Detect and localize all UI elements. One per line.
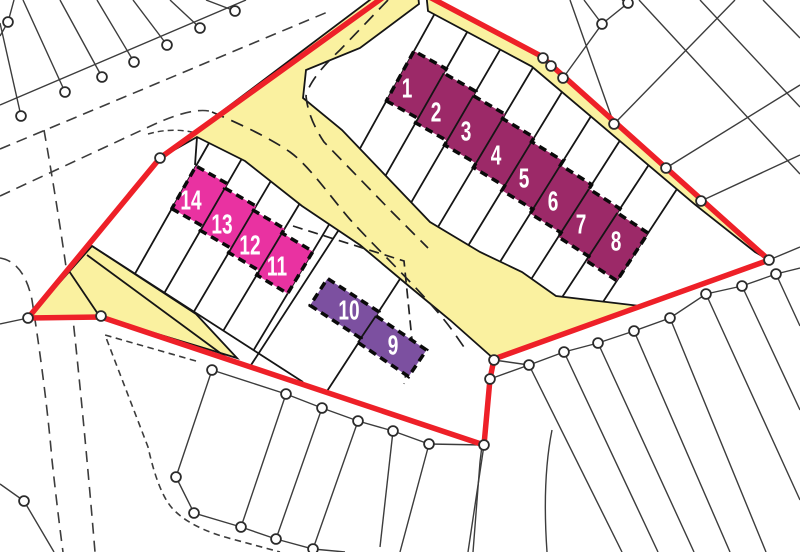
svg-text:14: 14 — [180, 185, 202, 217]
svg-text:9: 9 — [388, 330, 399, 362]
svg-text:5: 5 — [519, 163, 530, 195]
svg-text:13: 13 — [211, 209, 232, 241]
svg-text:3: 3 — [461, 116, 472, 148]
svg-text:8: 8 — [611, 226, 622, 258]
svg-text:7: 7 — [576, 209, 587, 241]
svg-text:1: 1 — [402, 73, 413, 105]
svg-text:4: 4 — [491, 140, 502, 172]
svg-text:2: 2 — [431, 97, 442, 129]
svg-text:6: 6 — [548, 186, 559, 218]
svg-text:12: 12 — [239, 230, 260, 262]
svg-text:11: 11 — [267, 251, 287, 283]
svg-text:10: 10 — [338, 295, 359, 327]
